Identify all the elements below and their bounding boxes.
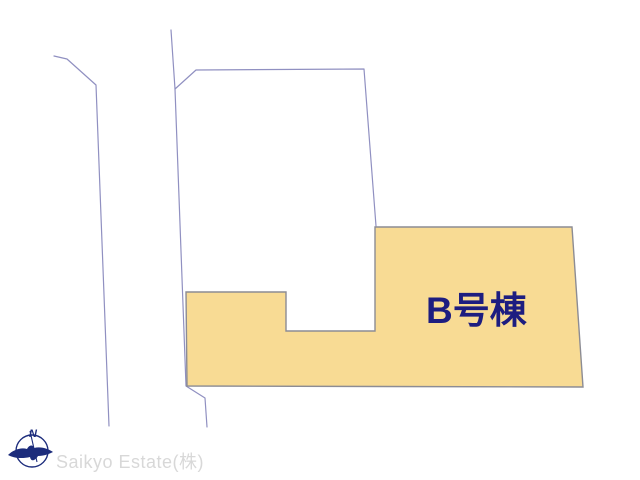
site-plan: N B号棟 Saikyo Estate(株)	[0, 0, 640, 480]
site-plan-drawing: N	[0, 0, 640, 480]
road-boundary-left	[54, 56, 109, 426]
compass-north-label: N	[29, 428, 38, 440]
watermark: Saikyo Estate(株)	[56, 448, 204, 474]
compass: N	[8, 428, 53, 467]
parcel-outline-upper	[175, 69, 376, 226]
lot-label: B号棟	[426, 291, 586, 332]
